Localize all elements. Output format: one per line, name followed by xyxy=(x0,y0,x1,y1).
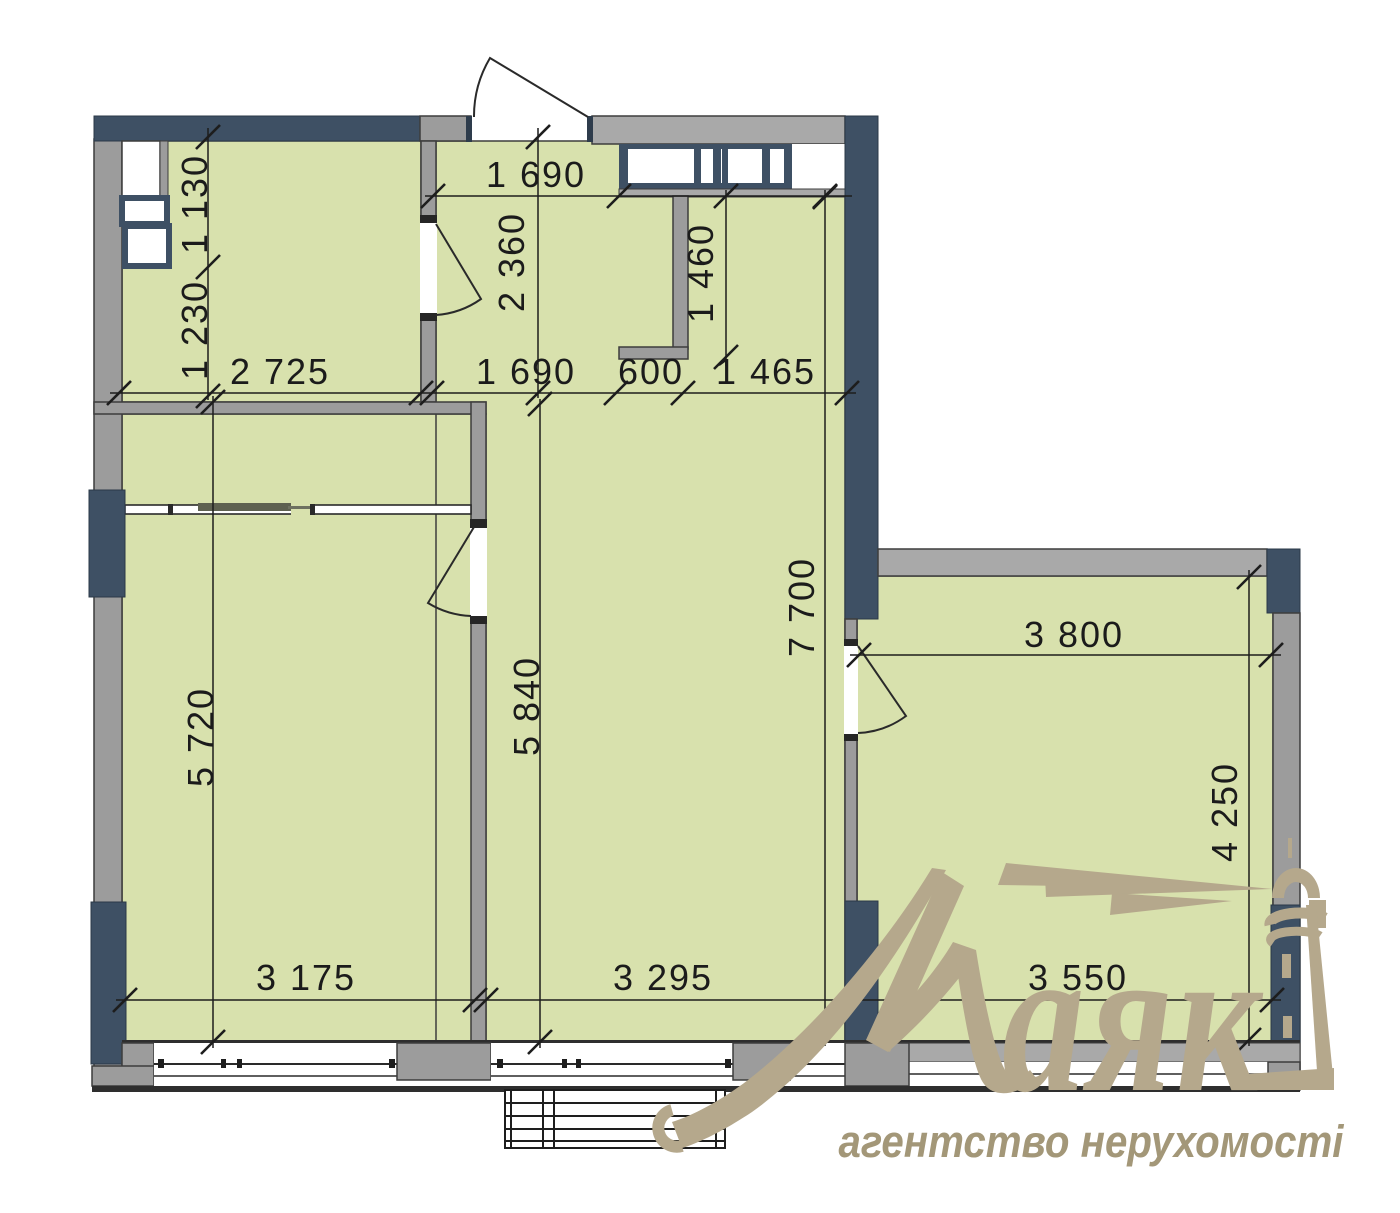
svg-text:5 840: 5 840 xyxy=(506,656,547,756)
svg-text:2 725: 2 725 xyxy=(230,351,330,392)
svg-text:1 460: 1 460 xyxy=(680,223,721,323)
svg-text:600: 600 xyxy=(618,351,684,392)
svg-text:3 175: 3 175 xyxy=(256,957,356,998)
svg-text:3 295: 3 295 xyxy=(613,957,713,998)
svg-text:5 720: 5 720 xyxy=(180,687,221,787)
svg-text:1 690: 1 690 xyxy=(476,351,576,392)
svg-text:1 130: 1 130 xyxy=(174,154,215,254)
svg-text:аяк: аяк xyxy=(1002,903,1264,1137)
svg-text:1 690: 1 690 xyxy=(486,154,586,195)
svg-text:1 230: 1 230 xyxy=(174,280,215,380)
svg-text:3 800: 3 800 xyxy=(1024,614,1124,655)
svg-text:агентство нерухомості: агентство нерухомості xyxy=(839,1116,1345,1167)
svg-text:4 250: 4 250 xyxy=(1204,762,1245,862)
svg-text:2 360: 2 360 xyxy=(491,212,532,312)
svg-text:1 465: 1 465 xyxy=(716,351,816,392)
svg-text:7 700: 7 700 xyxy=(781,557,822,657)
